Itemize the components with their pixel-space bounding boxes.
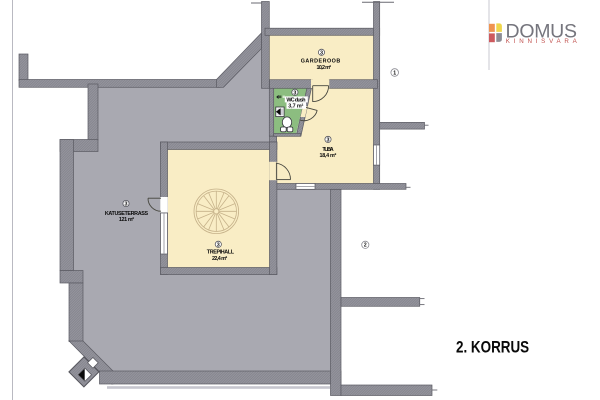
svg-text:22,4 m²: 22,4 m² [212, 256, 227, 262]
svg-text:1: 1 [393, 71, 396, 77]
svg-text:2: 2 [364, 243, 367, 249]
svg-text:3: 3 [217, 242, 220, 248]
svg-text:TREPIHALL: TREPIHALL [207, 249, 235, 255]
svg-text:3: 3 [293, 90, 296, 96]
svg-text:3,7 m²: 3,7 m² [288, 104, 303, 110]
svg-text:3: 3 [327, 138, 330, 144]
svg-text:18,4 m²: 18,4 m² [320, 153, 337, 159]
svg-text:3: 3 [125, 202, 128, 208]
svg-text:121 m²: 121 m² [119, 217, 134, 223]
svg-text:GARDEROOB: GARDEROOB [301, 59, 341, 65]
svg-text:2. KORRUS: 2. KORRUS [456, 338, 529, 357]
svg-text:3: 3 [320, 50, 323, 56]
svg-text:10,2 m²: 10,2 m² [317, 65, 332, 71]
